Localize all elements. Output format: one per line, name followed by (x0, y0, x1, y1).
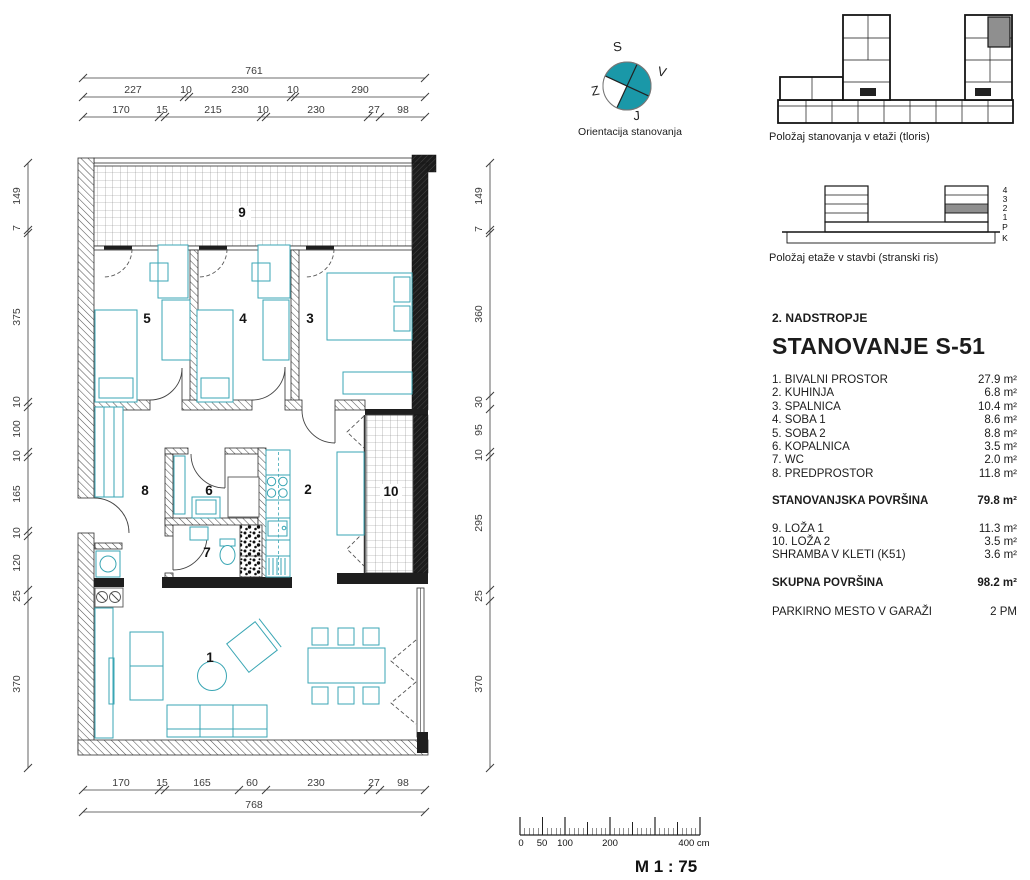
room-number-4: 4 (239, 311, 247, 326)
dimension-label: 15 (156, 777, 168, 789)
highlighted-unit (988, 17, 1010, 47)
scale-tick-50: 50 (537, 838, 548, 849)
living-total-value: 79.8 m² (977, 495, 1017, 508)
room-name: 3. SPALNICA (772, 401, 841, 414)
room-number-1: 1 (206, 650, 214, 665)
dimension-label: 10 (287, 84, 299, 96)
living-total-row: STANOVANJSKA POVRŠINA79.8 m² (772, 495, 1017, 508)
dimension-label: 230 (307, 104, 325, 116)
dimension-label: 98 (397, 777, 409, 789)
room-row: 5. SOBA 28.8 m² (772, 428, 1017, 441)
scale-tick-0: 0 (518, 838, 523, 849)
room-number-2: 2 (304, 482, 312, 497)
dimension-label: 10 (257, 104, 269, 116)
room-3-furniture (327, 273, 412, 394)
grand-total-label: SKUPNA POVRŠINA (772, 577, 883, 590)
room-row: 6. KOPALNICA3.5 m² (772, 441, 1017, 454)
room-area: 3.5 m² (984, 441, 1017, 454)
living-total-label: STANOVANJSKA POVRŠINA (772, 495, 928, 508)
extra-name: 10. LOŽA 2 (772, 536, 830, 549)
level-label-p: P (1002, 222, 1008, 232)
installation-shaft (240, 525, 262, 577)
extra-row: SHRAMBA V KLETI (K51)3.6 m² (772, 549, 1017, 562)
room-name: 6. KOPALNICA (772, 441, 850, 454)
dimension-label: 360 (473, 305, 485, 323)
floor-plan: 1 2 3 4 5 6 7 8 9 10 (78, 155, 436, 755)
room-number-9: 9 (238, 205, 246, 220)
extra-name: SHRAMBA V KLETI (K51) (772, 549, 906, 562)
room-area: 8.6 m² (984, 414, 1017, 427)
dimension-label: 27 (368, 777, 380, 789)
dimension-label: 149 (11, 187, 23, 205)
compass-south-label: J (633, 108, 641, 124)
dimension-label: 227 (124, 84, 142, 96)
dimension-label: 27 (368, 104, 380, 116)
hall-furniture (95, 407, 123, 607)
level-label-k: K (1002, 233, 1008, 243)
dimension-label: 370 (11, 675, 23, 693)
compass-west-label: Z (590, 82, 600, 98)
dimension-label: 30 (473, 396, 485, 408)
dimension-label: 768 (245, 799, 263, 811)
parking-label: PARKIRNO MESTO V GARAŽI (772, 606, 932, 619)
scale-ruler: 0 50 100 200 400 cm M 1 : 75 (518, 813, 709, 876)
dimension-label: 215 (204, 104, 222, 116)
dimension-label: 230 (231, 84, 249, 96)
extra-area: 3.6 m² (984, 549, 1017, 562)
room-name: 1. BIVALNI PROSTOR (772, 374, 888, 387)
room-number-10: 10 (383, 484, 398, 499)
dimension-label: 10 (11, 527, 23, 539)
dimension-label: 761 (245, 65, 263, 77)
scale-tick-100: 100 (557, 838, 573, 849)
floor-label: 2. NADSTROPJE (772, 311, 1017, 325)
dimension-label: 120 (11, 554, 23, 572)
dimension-label: 95 (473, 424, 485, 436)
unit-info-panel: 2. NADSTROPJE STANOVANJE S-51 1. BIVALNI… (772, 311, 1017, 620)
dimension-label: 25 (11, 590, 23, 602)
elevation-caption: Položaj etaže v stavbi (stranski ris) (769, 252, 938, 264)
grand-total-row: SKUPNA POVRŠINA98.2 m² (772, 577, 1017, 590)
room-row: 2. KUHINJA6.8 m² (772, 387, 1017, 400)
room-area: 11.8 m² (979, 468, 1017, 481)
dimension-label: 149 (473, 187, 485, 205)
site-plan-caption: Položaj stanovanja v etaži (tloris) (769, 131, 930, 143)
dimension-label: 230 (307, 777, 325, 789)
room-list: 1. BIVALNI PROSTOR27.9 m² 2. KUHINJA6.8 … (772, 374, 1017, 481)
room-area: 6.8 m² (984, 387, 1017, 400)
room-area: 8.8 m² (984, 428, 1017, 441)
dimension-label: 10 (473, 449, 485, 461)
compass-north-label: S (612, 38, 623, 54)
dimension-label: 370 (473, 675, 485, 693)
parking-row: PARKIRNO MESTO V GARAŽI2 PM (772, 606, 1017, 619)
scale-label: M 1 : 75 (635, 857, 697, 876)
loggia-9 (94, 166, 412, 277)
extras-list: 9. LOŽA 111.3 m² 10. LOŽA 23.5 m² SHRAMB… (772, 523, 1017, 563)
room-area: 10.4 m² (978, 401, 1017, 414)
dimension-label: 25 (473, 590, 485, 602)
room-row: 1. BIVALNI PROSTOR27.9 m² (772, 374, 1017, 387)
room-name: 8. PREDPROSTOR (772, 468, 873, 481)
plan-sheet: { "unit": { "floor_label": "2. NADSTROPJ… (0, 0, 1030, 880)
compass-caption: Orientacija stanovanja (574, 126, 686, 138)
room-area: 2.0 m² (984, 454, 1017, 467)
room-number-6: 6 (205, 483, 213, 498)
dimension-label: 100 (11, 420, 23, 438)
room-name: 2. KUHINJA (772, 387, 834, 400)
room-number-5: 5 (143, 311, 151, 326)
extra-area: 3.5 m² (984, 536, 1017, 549)
compass-icon: S V Z J (590, 38, 668, 123)
room-row: 4. SOBA 18.6 m² (772, 414, 1017, 427)
dimension-label: 165 (11, 485, 23, 503)
room-number-3: 3 (306, 311, 314, 326)
interior-walls (94, 250, 365, 588)
room-name: 7. WC (772, 454, 804, 467)
room-name: 4. SOBA 1 (772, 414, 826, 427)
dimension-label: 7 (473, 226, 485, 232)
scale-tick-400: 400 cm (678, 838, 709, 849)
dimension-label: 170 (112, 104, 130, 116)
room-row: 7. WC2.0 m² (772, 454, 1017, 467)
scale-tick-200: 200 (602, 838, 618, 849)
elevation-diagram: 4 3 2 1 P K (782, 185, 1008, 243)
room-number-8: 8 (141, 483, 149, 498)
dimension-label: 98 (397, 104, 409, 116)
site-plan-diagram (778, 15, 1013, 123)
dimension-label: 10 (11, 450, 23, 462)
dimension-label: 15 (156, 104, 168, 116)
room-number-7: 7 (203, 545, 211, 560)
room-area: 27.9 m² (978, 374, 1017, 387)
room-row: 3. SPALNICA10.4 m² (772, 401, 1017, 414)
room-row: 8. PREDPROSTOR11.8 m² (772, 468, 1017, 481)
dimension-label: 60 (246, 777, 258, 789)
living-glazing (391, 588, 428, 753)
extra-area: 11.3 m² (979, 523, 1017, 536)
dimension-label: 375 (11, 308, 23, 326)
kitchen-counter (266, 450, 290, 577)
room-name: 5. SOBA 2 (772, 428, 826, 441)
dimension-label: 10 (180, 84, 192, 96)
highlighted-floor (945, 204, 988, 213)
parking-value: 2 PM (990, 606, 1017, 619)
level-label-1: 1 (1003, 212, 1008, 222)
compass-east-label: V (656, 63, 668, 80)
dimension-label: 290 (351, 84, 369, 96)
dimension-label: 165 (193, 777, 211, 789)
dimension-label: 7 (11, 225, 23, 231)
dimension-label: 10 (11, 396, 23, 408)
dimension-label: 295 (473, 514, 485, 532)
grand-total-value: 98.2 m² (977, 577, 1017, 590)
extra-row: 10. LOŽA 23.5 m² (772, 536, 1017, 549)
unit-title: STANOVANJE S-51 (772, 333, 1017, 360)
living-room-furniture (95, 608, 385, 738)
extra-row: 9. LOŽA 111.3 m² (772, 523, 1017, 536)
extra-name: 9. LOŽA 1 (772, 523, 824, 536)
dimension-label: 170 (112, 777, 130, 789)
